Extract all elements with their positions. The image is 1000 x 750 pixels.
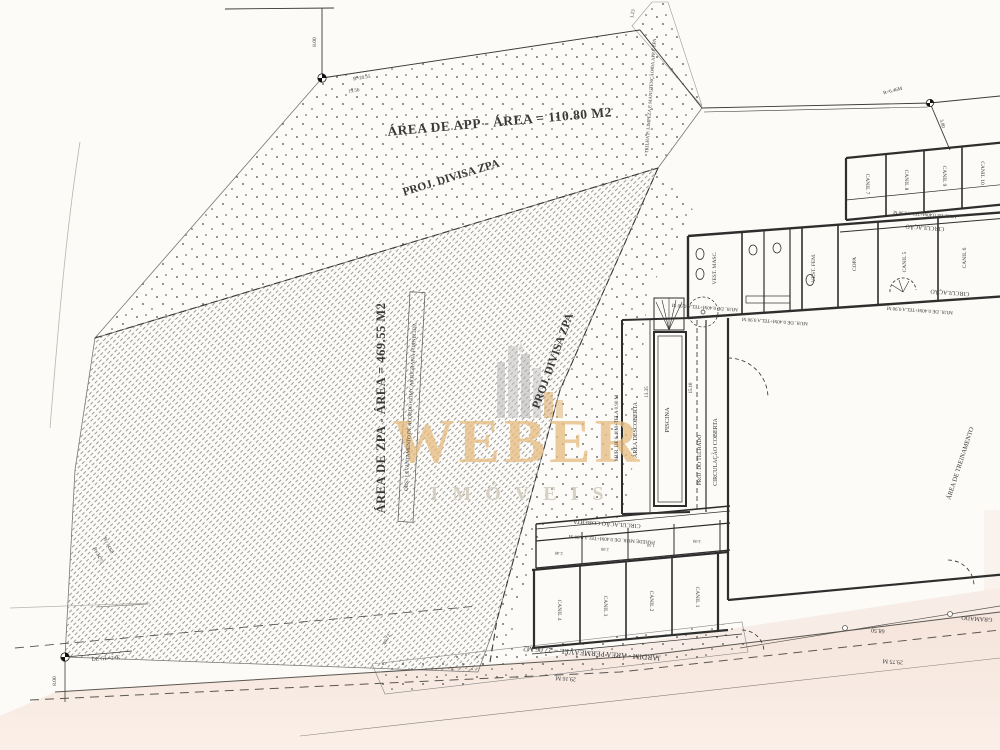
dim-3-00: 3.00: [692, 539, 701, 545]
dim-2-00: 2.00: [600, 547, 609, 553]
watermark-subtitle: IMÓVEIS: [431, 481, 618, 505]
canil-8-label: CANIL 8: [903, 170, 909, 191]
canil-9-label: CANIL 9: [941, 166, 947, 187]
dim-68-50: 68.50: [871, 627, 885, 634]
dim-8-00-bl: 8.00: [52, 676, 58, 686]
dim-15-10: 15.10: [689, 382, 694, 393]
canil-5-label: CANIL 5: [902, 251, 908, 272]
vest-fem-label: VEST. FEM.: [811, 253, 817, 282]
canil-4-label: CANIL 4: [556, 600, 562, 621]
dim-2-40: 2.40: [554, 551, 563, 557]
canil-3-label: CANIL 3: [602, 596, 608, 617]
site-plan-drawing: WEBER IMÓVEIS ÁREA DE APP - ÁREA = 110.8…: [0, 0, 1000, 750]
vest-masc-label: VEST. MASC.: [712, 251, 718, 285]
canil-10-label: CANIL 10: [979, 161, 985, 185]
area-zpa-label: ÁREA DE ZPA - ÁREA = 469.55 M2: [374, 303, 388, 514]
dim-8-00-top: 8.00: [312, 37, 318, 47]
site-plan-page: WEBER IMÓVEIS ÁREA DE APP - ÁREA = 110.8…: [0, 0, 1000, 750]
dim-1-50: 1.50: [646, 543, 655, 549]
dim-13-35: 13.35: [645, 386, 650, 398]
canil-6-label: CANIL 6: [962, 247, 968, 268]
piscina-label: PISCINA: [664, 407, 671, 433]
proj-telhado-label: PROJ. DO TELHADO: [697, 435, 703, 486]
area-descoberta-label: ÁREA DESCOBERTA: [631, 401, 639, 458]
mur-left-label: MUR. DE 0.40M+TELA 0.90 M: [615, 394, 620, 461]
copa-label: COPA: [852, 257, 858, 271]
circulacao-coberta-mid-label: CIRCULAÇÃO COBERTA: [711, 418, 719, 486]
watermark-brand: WEBER: [393, 408, 644, 476]
right-edge-tint: [984, 510, 1000, 610]
canil-1-label: CANIL 1: [694, 587, 700, 608]
canil-7-label: CANIL 7: [864, 174, 870, 195]
canil-2-label: CANIL 2: [648, 591, 654, 612]
